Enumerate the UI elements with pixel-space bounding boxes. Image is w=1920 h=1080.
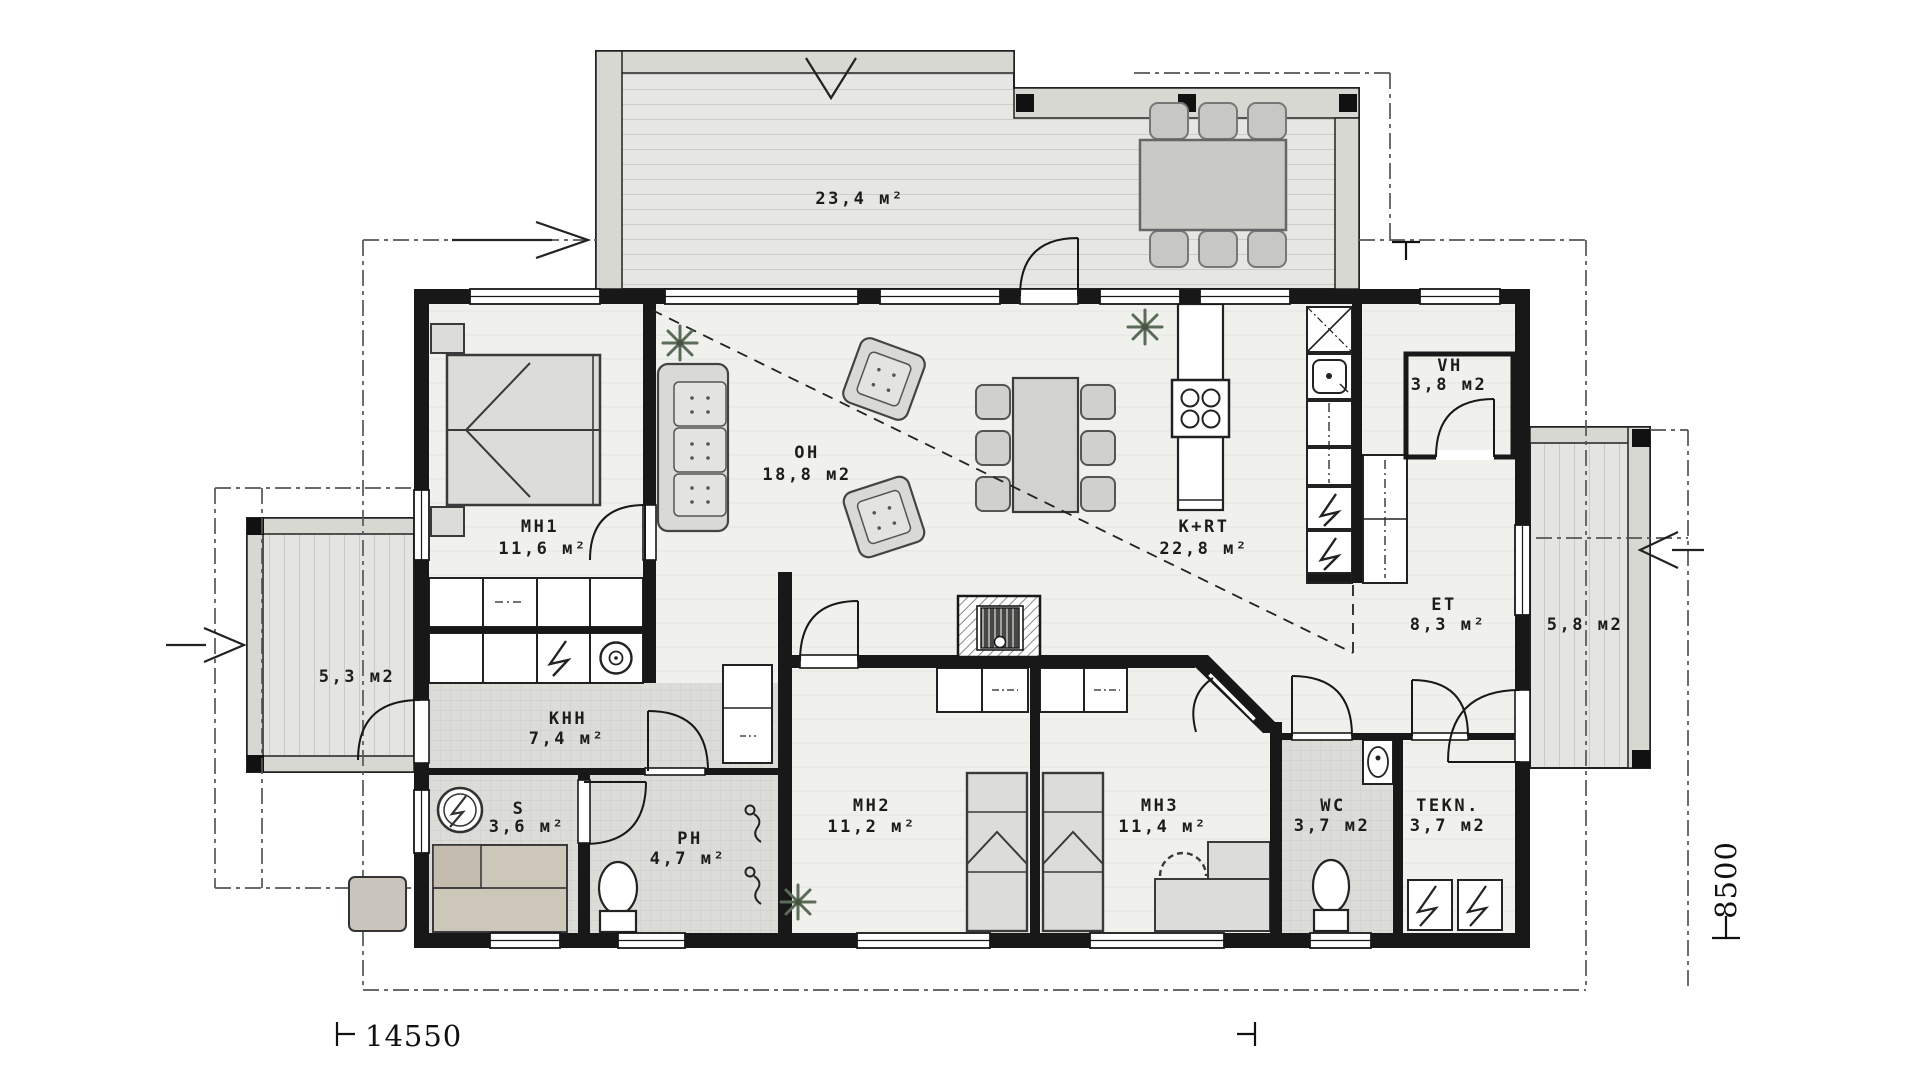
room-label-mh1: MH1: [521, 517, 559, 537]
toilet-icon: [599, 862, 637, 914]
single-bed: [967, 773, 1027, 931]
left-terrace: [247, 518, 414, 772]
room-label-ph: PH: [677, 829, 702, 849]
room-area-mh1: 11,6 м²: [498, 539, 587, 559]
plant-icon: [781, 885, 815, 919]
room-label-wc: WC: [1320, 796, 1345, 816]
khh-cabinet: [723, 665, 772, 763]
terrace-post: [1016, 94, 1034, 112]
room-area-s: 3,6 м²: [489, 817, 565, 837]
fireplace: [958, 596, 1040, 657]
entrance-arrow-icon: [204, 628, 244, 662]
hall-wardrobe: [1363, 455, 1407, 583]
terrace-post: [1339, 94, 1357, 112]
floor-plan-page: 23,4 м² MH1 11,6 м² OH 18,8 м2 K+RT 22,8…: [0, 0, 1920, 1080]
room-label-mh2: MH2: [853, 796, 891, 816]
sofa: [658, 364, 728, 531]
exterior-box: [349, 877, 406, 931]
room-area-mh3: 11,4 м²: [1118, 817, 1207, 837]
double-bed: [431, 324, 600, 536]
kitchen-cabinets: [1307, 307, 1352, 583]
dining-set: [976, 378, 1115, 512]
kitchen-island: [1172, 304, 1229, 510]
room-area-tekn: 3,7 м2: [1410, 816, 1486, 836]
room-area-khh: 7,4 м²: [529, 729, 605, 749]
room-label-mh3: MH3: [1141, 796, 1179, 816]
single-bed: [1043, 773, 1103, 931]
toilet-icon: [1313, 860, 1349, 912]
room-area-et: 8,3 м²: [1410, 615, 1486, 635]
room-area-ph: 4,7 м²: [650, 849, 726, 869]
desk: [1155, 842, 1270, 931]
outdoor-dining-set: [1140, 103, 1286, 267]
room-label-oh: OH: [794, 443, 819, 463]
plant-icon: [1128, 310, 1162, 344]
room-area-krt: 22,8 м²: [1159, 539, 1248, 559]
vh-door-opening: [1436, 450, 1494, 460]
top-terrace: [596, 51, 1359, 289]
room-label-krt: K+RT: [1179, 517, 1230, 537]
sauna-stove-icon: [438, 788, 482, 832]
room-label-tekn: TEKN.: [1416, 796, 1480, 816]
cooktop-icon: [1172, 380, 1229, 437]
electrical-panel-icon: [1458, 880, 1502, 930]
room-area-oh: 18,8 м2: [762, 465, 851, 485]
dimension-width: 14550: [365, 1019, 462, 1053]
deck-edge-board: [596, 51, 1014, 73]
room-label-vh: VH: [1437, 356, 1462, 376]
room-area-mh2: 11,2 м²: [827, 817, 916, 837]
room-label-khh: KHH: [549, 709, 587, 729]
room-label-s: S: [513, 799, 526, 819]
floor-plan-drawing: [0, 0, 1920, 1080]
room-area-wc: 3,7 м2: [1294, 816, 1370, 836]
dimension-height: 8500: [1709, 841, 1743, 919]
room-area-vh: 3,8 м2: [1411, 375, 1487, 395]
room-label-et: ET: [1431, 595, 1456, 615]
plant-icon: [663, 326, 697, 360]
terrace-top-area: 23,4 м²: [815, 189, 904, 209]
right-terrace: [1530, 427, 1650, 768]
terrace-right-area: 5,8 м2: [1547, 615, 1623, 635]
electrical-panel-icon: [1408, 880, 1452, 930]
terrace-left-area: 5,3 м2: [319, 667, 395, 687]
